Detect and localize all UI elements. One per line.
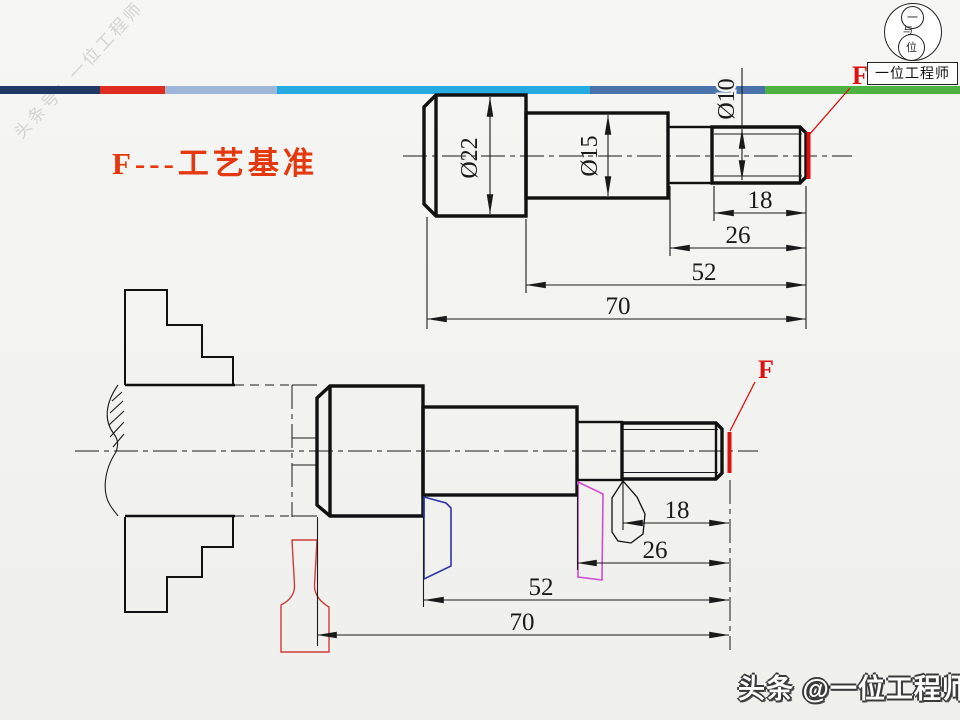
top-dia-10: Ø10 (714, 78, 740, 119)
top-dim-52: 52 (692, 259, 717, 286)
top-dim-26: 26 (726, 222, 751, 249)
tool-thread-black (612, 481, 645, 543)
engineering-drawing-canvas: F 18 26 52 70 Ø22 Ø15 Ø10 (0, 0, 960, 720)
top-datum-label: F (852, 61, 868, 90)
logo-inner-circle-bottom: 位 (898, 34, 925, 61)
tool-turning-magenta (578, 482, 603, 580)
chuck-jaw-top (125, 290, 233, 385)
top-dia-22: Ø22 (457, 137, 483, 178)
bottom-machining-drawing: F 18 26 52 70 (75, 290, 774, 652)
bottom-datum-leader (730, 382, 755, 431)
top-shaft-thread (712, 127, 806, 183)
bottom-dim-52: 52 (529, 574, 554, 601)
chuck-jaw-bottom (125, 517, 233, 612)
top-dia-15: Ø15 (577, 135, 603, 176)
bottom-datum-label: F (758, 355, 774, 384)
top-shaft-drawing: F 18 26 52 70 Ø22 Ø15 Ø10 (403, 61, 868, 329)
bottom-dim-26: 26 (643, 537, 668, 564)
top-datum-leader (809, 88, 850, 135)
top-shaft-neck (668, 127, 712, 183)
tool-turning-blue (424, 497, 451, 579)
top-dim-18: 18 (748, 187, 773, 214)
logo-label: 一位工程师 (867, 62, 958, 85)
logo-char-bottom: 位 (899, 35, 924, 62)
bottom-dim-70: 70 (510, 609, 535, 636)
page-title: F---工艺基准 (112, 138, 318, 183)
bottom-dim-18: 18 (665, 497, 690, 524)
footer-watermark: 头条 @一位工程师 (738, 667, 960, 706)
top-dim-70: 70 (606, 293, 631, 320)
